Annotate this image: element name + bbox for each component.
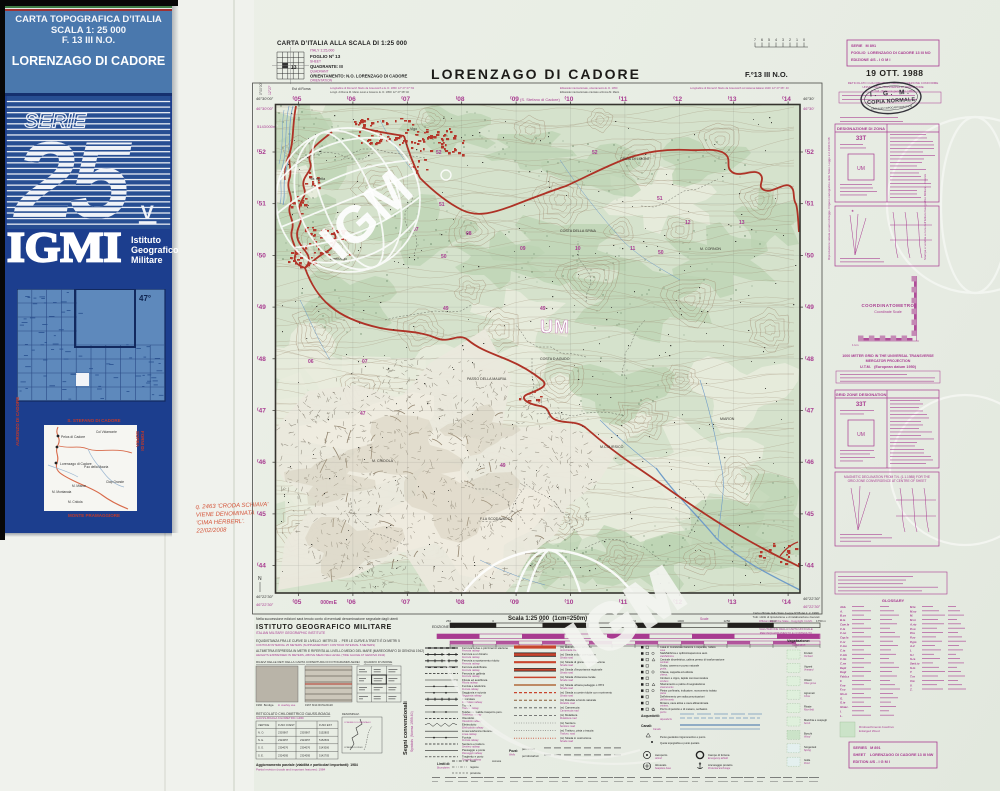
svg-text:Aggiornamento parziale (viabil: Aggiornamento parziale (viabilità e part… — [256, 763, 358, 767]
svg-text:⁽06: ⁽06 — [347, 598, 356, 606]
svg-text:Mulattiera road: Mulattiera road — [560, 717, 577, 720]
svg-text:46°22’30”: 46°22’30” — [803, 604, 821, 609]
svg-text:46°30’: 46°30’ — [803, 96, 814, 101]
svg-text:Orchard: Orchard — [804, 655, 813, 658]
svg-text:COSTA D AGUDO: COSTA D AGUDO — [540, 357, 570, 361]
svg-text:2324057: 2324057 — [278, 738, 289, 742]
svg-text:COMUNE DI LORENZAGO: COMUNE DI LORENZAGO — [344, 721, 371, 724]
svg-text:Strada road: Strada road — [560, 687, 574, 690]
svg-text:⁽13: ⁽13 — [728, 598, 737, 606]
svg-text:Strada road: Strada road — [560, 740, 574, 743]
svg-text:46°30’00”: 46°30’00” — [256, 106, 274, 111]
svg-text:49: 49 — [443, 306, 449, 312]
svg-text:08: 08 — [466, 231, 472, 237]
svg-text:★: ★ — [851, 209, 855, 213]
svg-text:CONTOUR INTERVAL 25 METERS (SU: CONTOUR INTERVAL 25 METERS (SUPPLEMENTAR… — [256, 643, 375, 647]
svg-text:F.so: F.so — [840, 688, 846, 692]
svg-text:⁽51: ⁽51 — [257, 200, 266, 208]
svg-text:Emergency airfield: Emergency airfield — [708, 757, 728, 760]
svg-text:⁽44: ⁽44 — [257, 562, 266, 570]
svg-text:Coordinate Scale: Coordinate Scale — [874, 310, 902, 314]
svg-text:M. CRIDOLA: M. CRIDOLA — [372, 459, 394, 463]
svg-text:COORDINATOMETRO: COORDINATOMETRO — [862, 303, 915, 308]
svg-text:⁽09: ⁽09 — [510, 95, 519, 103]
svg-text:Serb.io: Serb.io — [910, 662, 920, 666]
svg-text:Riproduzione vietata ai sensi: Riproduzione vietata ai sensi di legge. … — [827, 137, 831, 260]
svg-text:ISTITUTO GEOGRAFICO MILITARE: ISTITUTO GEOGRAFICO MILITARE — [256, 622, 392, 631]
svg-text:COPERTURA DI FOTOGRAMMI AEREI: COPERTURA DI FOTOGRAMMI AEREI — [306, 660, 360, 664]
svg-text:EDITION 4/S - I G M I: EDITION 4/S - I G M I — [853, 760, 890, 764]
svg-text:⁽05: ⁽05 — [293, 598, 302, 606]
svg-text:GRID ZONE CONVERGENCE AT CENTR: GRID ZONE CONVERGENCE AT CENTRE OF SHEET — [848, 479, 927, 483]
svg-text:5: 5 — [768, 38, 770, 42]
svg-text:⁽44: ⁽44 — [805, 562, 814, 570]
svg-text:Fabb.a: Fabb.a — [840, 675, 849, 679]
svg-text:⁽12: ⁽12 — [673, 95, 682, 103]
svg-text:⁽10: ⁽10 — [565, 598, 574, 606]
svg-text:⁽10: ⁽10 — [565, 95, 574, 103]
svg-text:Enlarged Wood: Enlarged Wood — [859, 729, 880, 733]
svg-text:DESIGNAZIONE DI ZONA: DESIGNAZIONE DI ZONA — [837, 126, 885, 131]
svg-text:⁽14: ⁽14 — [782, 598, 791, 606]
svg-text:Stampa e vendita a cura dell’I: Stampa e vendita a cura dell’Istituto Ge… — [923, 173, 927, 260]
svg-text:Dogl: Dogl — [840, 670, 846, 674]
svg-text:⁽07: ⁽07 — [401, 95, 410, 103]
svg-text:UM: UM — [857, 432, 865, 438]
svg-text:Nella successione edizioni sar: Nella successione edizioni sarà tenuto c… — [256, 617, 398, 621]
svg-text:11: 11 — [630, 246, 636, 252]
svg-text:C.me: C.me — [840, 644, 847, 648]
svg-text:M.ni: M.ni — [910, 618, 916, 622]
svg-text:250: 250 — [446, 619, 451, 623]
svg-text:⁽46: ⁽46 — [805, 458, 814, 466]
svg-text:COMUNE DI VIGO: COMUNE DI VIGO — [344, 747, 363, 749]
svg-text:Stato: Stato — [470, 759, 477, 763]
svg-text:COSTA DELLA SPINA: COSTA DELLA SPINA — [560, 229, 596, 233]
svg-text:ITALY 1:25,000: ITALY 1:25,000 — [310, 49, 334, 53]
svg-text:LORENZAGO DI CADORE: LORENZAGO DI CADORE — [431, 66, 641, 82]
svg-text:Official map of the State - Co: Official map of the State - Copyright I.… — [759, 619, 813, 623]
svg-text:FOGLIO LORENZAGO DI CADORE 13: FOGLIO LORENZAGO DI CADORE 13 III NO — [851, 51, 931, 55]
svg-text:Gh.io: Gh.io — [840, 692, 847, 696]
svg-text:in overlay use: in overlay use — [278, 703, 296, 707]
svg-text:Symbols (Norma 1959-60): Symbols (Norma 1959-60) — [410, 711, 414, 752]
svg-text:Pietra confinaria, indicatore,: Pietra confinaria, indicatore, monumento… — [660, 688, 717, 692]
svg-text:GRID ZONE DESIGNATION: GRID ZONE DESIGNATION — [836, 392, 887, 397]
svg-text:C.no: C.no — [840, 631, 847, 635]
svg-text:50: 50 — [658, 250, 664, 256]
svg-text:Acquedotti:: Acquedotti: — [641, 714, 660, 718]
svg-text:2303967: 2303967 — [278, 731, 289, 735]
svg-text:Strada road: Strada road — [560, 656, 574, 659]
svg-text:Centrale idroelettrica, cabina: Centrale idroelettrica, cabina presso di… — [660, 657, 725, 661]
svg-text:09: 09 — [520, 246, 526, 252]
svg-text:2304076: 2304076 — [300, 746, 311, 750]
svg-text:F.º13 III N.O.: F.º13 III N.O. — [745, 70, 788, 79]
svg-text:33T: 33T — [856, 402, 867, 408]
svg-text:1960 Bordiga: 1960 Bordiga — [256, 703, 274, 707]
svg-text:Sentiero road: Sentiero road — [560, 725, 576, 728]
svg-text:2324095: 2324095 — [278, 753, 289, 757]
svg-text:33T: 33T — [856, 136, 867, 142]
svg-text:S. E.: S. E. — [258, 753, 264, 757]
svg-text:5152803: 5152803 — [319, 731, 330, 735]
svg-text:⁽06: ⁽06 — [347, 95, 356, 103]
svg-text:SHEET LORENZAGO DI CADORE 1: SHEET LORENZAGO DI CADORE 13 III NW — [853, 753, 934, 757]
svg-text:M. CORNON: M. CORNON — [700, 247, 721, 251]
svg-text:A.rio: A.rio — [909, 622, 917, 626]
svg-text:50: 50 — [441, 254, 447, 260]
svg-text:1: 1 — [796, 38, 798, 42]
svg-text:A.d: A.d — [909, 644, 915, 648]
svg-text:Z.: Z. — [909, 688, 913, 692]
svg-text:⁽50: ⁽50 — [805, 251, 814, 259]
svg-text:51: 51 — [439, 202, 445, 208]
svg-text:Olive grove: Olive grove — [804, 682, 817, 685]
svg-text:Strada road: Strada road — [560, 664, 574, 667]
svg-text:Ghiac.: Ghiac. — [840, 705, 849, 709]
svg-text:provincia: provincia — [470, 771, 481, 775]
svg-text:PER INQUADRAMENTO E CONTENUTO: PER INQUADRAMENTO E CONTENUTO — [760, 631, 813, 635]
svg-text:HEIGHTS EXPRESSED IN METERS, A: HEIGHTS EXPRESSED IN METERS, ABOVE MEAN … — [256, 653, 385, 657]
svg-text:⁽45: ⁽45 — [805, 510, 814, 518]
svg-text:52: 52 — [436, 150, 442, 156]
svg-text:CRIDA DI LIGONT: CRIDA DI LIGONT — [620, 157, 651, 161]
svg-text:P.ta: P.ta — [910, 631, 915, 635]
svg-text:⁽47: ⁽47 — [805, 407, 814, 415]
svg-text:Seaplane base: Seaplane base — [655, 767, 672, 770]
svg-text:Abb.: Abb. — [839, 605, 846, 609]
svg-text:RILIEVI DELLE RETI DELLA CARTA: RILIEVI DELLE RETI DELLA CARTA — [256, 660, 305, 664]
svg-text:Pond: Pond — [804, 762, 810, 765]
svg-text:⁽48: ⁽48 — [257, 355, 266, 363]
svg-text:⁽13: ⁽13 — [728, 95, 737, 103]
svg-text:I.: I. — [840, 709, 842, 713]
svg-text:47: 47 — [360, 411, 366, 417]
svg-text:VERTICE: VERTICE — [258, 723, 269, 727]
svg-text:52: 52 — [592, 150, 598, 156]
svg-text:C.ta: C.ta — [840, 649, 846, 653]
svg-text:5142705: 5142705 — [319, 753, 330, 757]
svg-text:Vegetation: Vegetation — [792, 643, 806, 647]
svg-text:1967 M14 RC5x20x20: 1967 M14 RC5x20x20 — [305, 703, 333, 707]
svg-text:1750 m: 1750 m — [816, 619, 827, 623]
svg-text:C.ne: C.ne — [840, 662, 847, 666]
svg-text:⁽08: ⁽08 — [456, 598, 465, 606]
svg-text:⁽47: ⁽47 — [257, 407, 266, 415]
svg-text:Scale: Scale — [700, 617, 709, 621]
svg-text:MERCATOR PROJECTION: MERCATOR PROJECTION — [866, 359, 911, 363]
svg-text:2: 2 — [789, 38, 791, 42]
svg-text:Ellissoide internazionale, ori: Ellissoide internazionale, orientamento … — [560, 86, 618, 90]
svg-text:Limiti di:: Limiti di: — [437, 762, 450, 766]
svg-text:250: 250 — [539, 619, 544, 623]
svg-text:regione: regione — [470, 765, 479, 769]
svg-text:Ellissoide internazionale orie: Ellissoide internazionale orientato a Ro… — [560, 90, 620, 94]
svg-text:Pozzi:: Pozzi: — [509, 749, 518, 753]
svg-text:M.COURSICÒ: M.COURSICÒ — [600, 444, 624, 449]
svg-text:2304076: 2304076 — [278, 746, 289, 750]
svg-text:Vallesella: Vallesella — [310, 177, 325, 181]
svg-text:51: 51 — [657, 196, 663, 202]
svg-text:⁽11: ⁽11 — [619, 95, 628, 103]
svg-text:Vigo: Vigo — [410, 127, 417, 131]
svg-text:SHEET: SHEET — [310, 60, 321, 64]
svg-text:QUADRANTE: III: QUADRANTE: III — [310, 64, 343, 69]
svg-text:46°22’30”: 46°22’30” — [803, 596, 821, 601]
svg-text:QUADRO D’UNIONE: QUADRO D’UNIONE — [364, 660, 393, 664]
svg-text:Casa in muratura e baracca o c: Casa in muratura e baracca o capanna, ru… — [660, 645, 716, 649]
svg-text:ITALIAN MILITARY GEOGRAPHIC IN: ITALIAN MILITARY GEOGRAPHIC INSTITUTE — [256, 631, 326, 635]
svg-text:Scrub: Scrub — [804, 722, 811, 725]
svg-text:2324095: 2324095 — [300, 753, 311, 757]
svg-text:7: 7 — [754, 38, 756, 42]
svg-text:13: 13 — [291, 65, 297, 71]
svg-text:Quota topografica e punto quot: Quota topografica e punto quotato — [660, 741, 700, 745]
svg-text:comune: comune — [492, 760, 502, 763]
svg-text:Punto geodetico trigonometrico: Punto geodetico trigonometrico e punto — [660, 735, 706, 739]
svg-text:N. O.: N. O. — [258, 731, 264, 735]
svg-text:DENOMINAZ.: DENOMINAZ. — [342, 712, 360, 716]
svg-text:000m E: 000m E — [320, 600, 338, 606]
svg-text:FUSO OVEST: FUSO OVEST — [278, 723, 295, 727]
svg-text:ORIENTATION: ORIENTATION — [310, 79, 333, 83]
svg-text:06: 06 — [308, 359, 314, 365]
svg-text:49: 49 — [540, 306, 546, 312]
svg-text:⁽49: ⁽49 — [257, 303, 266, 311]
svg-text:1250: 1250 — [724, 619, 731, 623]
svg-text:Vineyard: Vineyard — [804, 668, 814, 671]
svg-text:T.: T. — [910, 670, 913, 674]
svg-text:MIARON: MIARON — [720, 417, 735, 421]
svg-text:⁽50: ⁽50 — [257, 251, 266, 259]
svg-text:T.re: T.re — [910, 675, 915, 679]
svg-text:5143006: 5143006 — [319, 746, 330, 750]
svg-text:L.: L. — [840, 714, 843, 718]
svg-text:Spring: Spring — [804, 749, 812, 752]
svg-text:46°30’: 46°30’ — [803, 106, 814, 111]
svg-text:EDIZIONE 4/S - I G M I: EDIZIONE 4/S - I G M I — [851, 58, 890, 62]
svg-text:M.te: M.te — [910, 605, 916, 609]
svg-text:0: 0 — [492, 619, 494, 623]
svg-text:L: L — [910, 649, 912, 653]
svg-text:Segni convenzionali: Segni convenzionali — [403, 701, 409, 755]
svg-text:12: 12 — [685, 220, 691, 226]
svg-text:Strada road: Strada road — [560, 694, 574, 697]
svg-text:Carrareccia road: Carrareccia road — [560, 710, 579, 713]
svg-text:⁽51: ⁽51 — [805, 200, 814, 208]
svg-text:4: 4 — [775, 38, 777, 42]
svg-text:Citrus: Citrus — [804, 695, 811, 698]
svg-text:⁽05: ⁽05 — [293, 95, 302, 103]
svg-text:19 OTT. 1988: 19 OTT. 1988 — [866, 68, 924, 78]
svg-text:N. E.: N. E. — [258, 738, 264, 742]
svg-text:GAUSS-BOAGA KILOMETRIC GRID: GAUSS-BOAGA KILOMETRIC GRID — [256, 716, 304, 720]
svg-text:⁽48: ⁽48 — [805, 355, 814, 363]
svg-text:46°22’30”: 46°22’30” — [256, 594, 274, 599]
svg-text:Protected anchorage: Protected anchorage — [708, 767, 731, 770]
svg-text:Est di Roma: Est di Roma — [292, 87, 311, 91]
svg-text:2303967: 2303967 — [300, 731, 311, 735]
svg-text:F.LA SCODAVACCA: F.LA SCODAVACCA — [480, 517, 513, 521]
svg-text:pozzo: pozzo — [659, 711, 667, 714]
svg-text:B.ta: B.ta — [840, 618, 846, 622]
svg-text:CARTA D’ITALIA ALLA SCALA DI 1: CARTA D’ITALIA ALLA SCALA DI 1:25 000 — [277, 40, 407, 47]
svg-text:Canali:: Canali: — [641, 724, 652, 728]
svg-text:N: N — [258, 576, 262, 582]
svg-text:(S. Stefano di Cadore): (S. Stefano di Cadore) — [520, 97, 560, 102]
svg-text:Wells: Wells — [509, 754, 516, 757]
svg-text:⁽08: ⁽08 — [456, 95, 465, 103]
svg-text:Partial revision (roads and im: Partial revision (roads and important fe… — [256, 768, 326, 772]
svg-text:10: 10 — [575, 246, 581, 252]
svg-text:PASSO DELLA MAURIA: PASSO DELLA MAURIA — [467, 377, 507, 381]
svg-text:GLOSSARY: GLOSSARY — [882, 598, 905, 603]
svg-text:SERIE M 891: SERIE M 891 — [851, 44, 876, 48]
svg-text:⁽52: ⁽52 — [805, 148, 814, 156]
svg-text:Canals: Canals — [653, 728, 662, 731]
svg-text:Rotabile road: Rotabile road — [560, 702, 575, 705]
svg-text:Longitudine di Roma M. Mario d: Longitudine di Roma M. Mario da Greenwic… — [330, 86, 415, 90]
svg-text:46°22’30”: 46°22’30” — [256, 602, 274, 607]
svg-text:Tratturo, road: Tratturo, road — [560, 732, 576, 735]
svg-text:46°30’00”: 46°30’00” — [256, 96, 274, 101]
svg-text:49: 49 — [500, 463, 506, 469]
svg-text:3: 3 — [782, 38, 784, 42]
svg-text:FOGLIO Nº 13: FOGLIO Nº 13 — [310, 54, 341, 59]
svg-text:⁽46: ⁽46 — [257, 458, 266, 466]
svg-text:S. O.: S. O. — [258, 746, 264, 750]
svg-text:1 km: 1 km — [852, 343, 859, 347]
svg-text:0: 0 — [803, 38, 805, 42]
svg-text:1000 METER GRID IN THE UNIVERS: 1000 METER GRID IN THE UNIVERSAL TRANSVE… — [842, 354, 934, 358]
svg-text:Pozzo di petrolio e di metano,: Pozzo di petrolio e di metano, serbatoio — [660, 707, 708, 711]
svg-text:0°00’00”: 0°00’00” — [259, 82, 263, 95]
svg-text:Strada road: Strada road — [560, 679, 574, 682]
svg-text:⁽07: ⁽07 — [401, 598, 410, 606]
svg-text:5152503: 5152503 — [319, 738, 330, 742]
svg-text:Wood: Wood — [804, 735, 811, 738]
svg-text:U.T.M. (European datum 1950): U.T.M. (European datum 1950) — [860, 365, 917, 369]
svg-text:Rice field: Rice field — [804, 709, 815, 712]
svg-text:13: 13 — [739, 220, 745, 226]
svg-text:SERIES M 891: SERIES M 891 — [853, 746, 881, 750]
svg-text:Aqueducts: Aqueducts — [659, 718, 673, 721]
svg-text:UM: UM — [857, 166, 865, 172]
svg-text:12°27’: 12°27’ — [268, 85, 272, 95]
svg-text:Cam.le: Cam.le — [840, 622, 850, 626]
svg-text:6: 6 — [761, 38, 763, 42]
svg-text:Longitudine di Roma M. Mario d: Longitudine di Roma M. Mario da Greenwic… — [690, 86, 789, 90]
svg-text:UM: UM — [540, 317, 570, 337]
svg-text:Boundaries: Boundaries — [437, 767, 450, 770]
svg-text:2324057: 2324057 — [300, 738, 311, 742]
svg-text:FUSO EST: FUSO EST — [319, 723, 332, 727]
svg-text:⁽14: ⁽14 — [782, 95, 791, 103]
svg-text:Strada road: Strada road — [560, 672, 574, 675]
svg-text:⁽49: ⁽49 — [805, 303, 814, 311]
svg-text:⁽09: ⁽09 — [510, 598, 519, 606]
svg-text:⁽52: ⁽52 — [257, 148, 266, 156]
svg-text:07: 07 — [362, 359, 368, 365]
svg-text:per idrocarburi: per idrocarburi — [522, 754, 539, 758]
svg-text:Longit. di Roma M. Mario ovest: Longit. di Roma M. Mario ovest a Greenw.… — [330, 90, 409, 94]
svg-text:⁽45: ⁽45 — [257, 510, 266, 518]
